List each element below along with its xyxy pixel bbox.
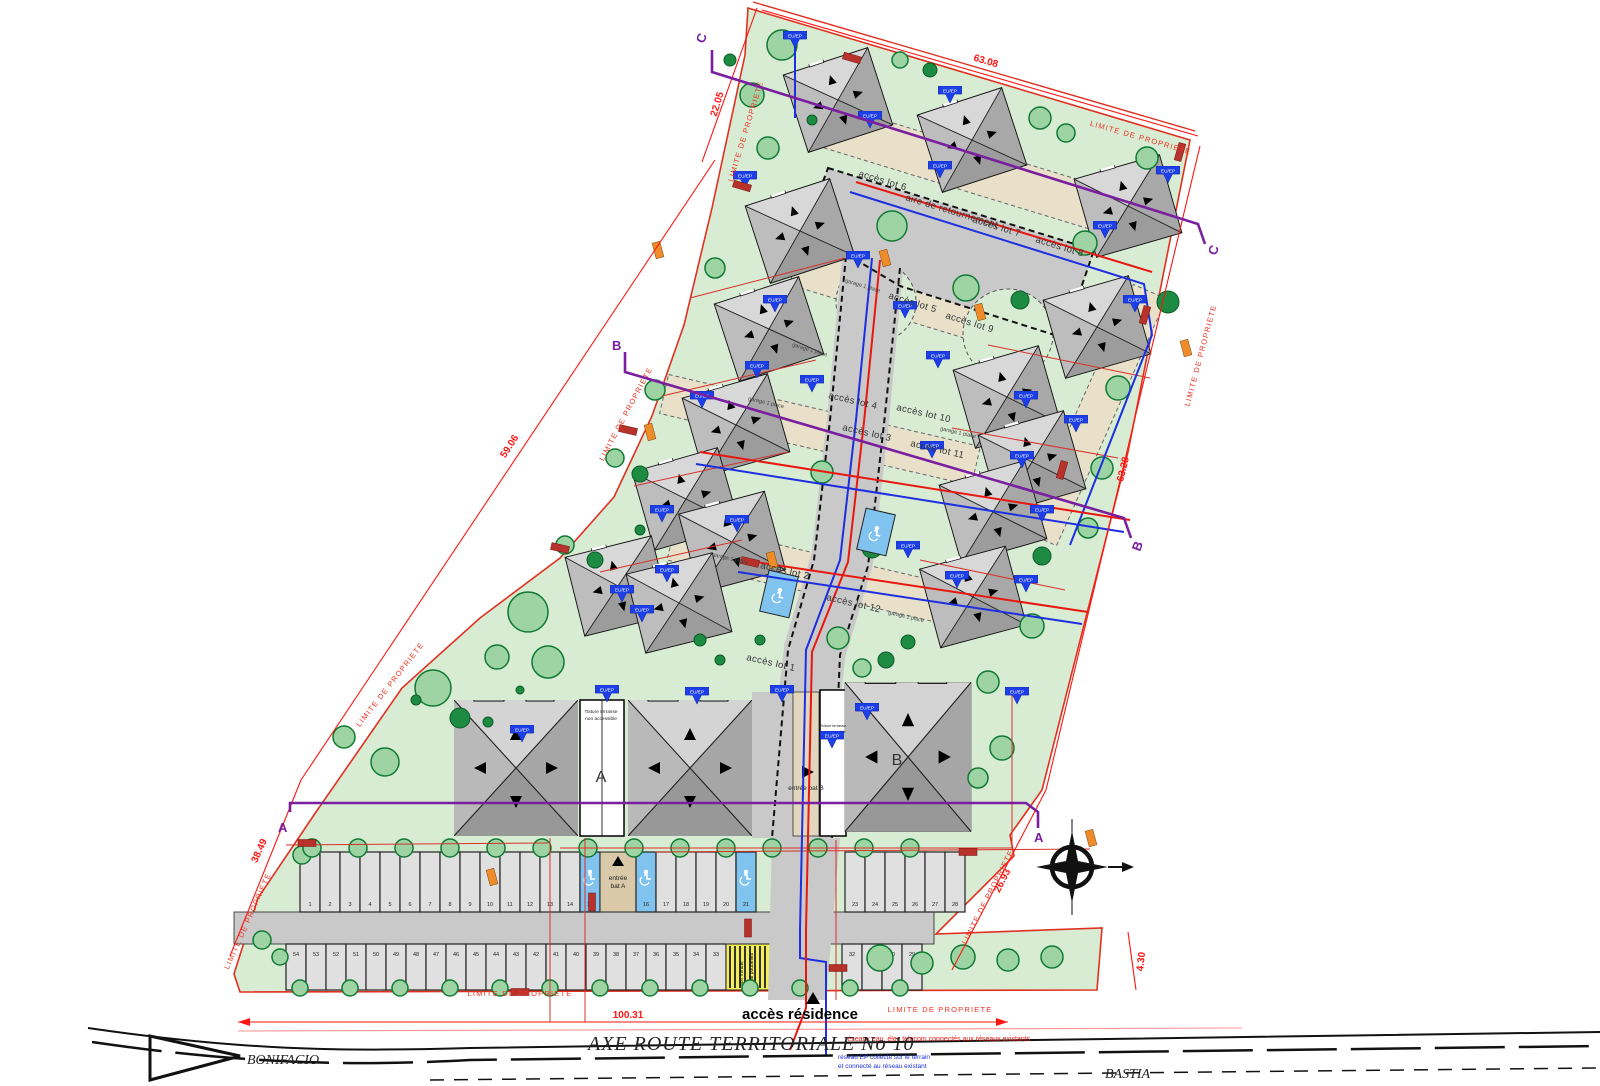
parking-stall <box>606 944 626 990</box>
parking-stall-number: 23 <box>852 902 858 908</box>
section-c-right: C <box>1205 242 1223 257</box>
note-networks-blue-1: réseau EP collecté sur le terrain <box>838 1054 930 1061</box>
section-b-right: B <box>1129 539 1146 553</box>
site-plan-page: { "plan": { "boundary_label": "LIMITE DE… <box>0 0 1600 1086</box>
access-residence-label: accès résidence <box>742 1006 858 1023</box>
section-a-right: A <box>1034 830 1044 845</box>
parking-stall-number: 38 <box>613 952 619 958</box>
tree-icon <box>757 137 779 159</box>
dim-top-left: 22.05 <box>709 90 727 118</box>
tree-icon <box>1041 946 1063 968</box>
dim-bottom-left: 38.49 <box>250 837 270 865</box>
parking-stall-number: 42 <box>533 952 539 958</box>
parking-stall-number: 35 <box>673 952 679 958</box>
tree-icon <box>1136 147 1158 169</box>
parking-stall-number: 9 <box>468 902 471 908</box>
parking-stall-number: 45 <box>473 952 479 958</box>
parking-stall <box>706 944 726 990</box>
tree-icon <box>827 627 849 649</box>
tree-icon <box>923 63 937 77</box>
bush-icon <box>635 525 645 535</box>
tree-icon <box>532 646 564 678</box>
red-tag <box>589 893 596 911</box>
tree-icon <box>990 736 1014 760</box>
parking-stall-number: 52 <box>333 952 339 958</box>
parking-stall-number: 46 <box>453 952 459 958</box>
building-b-label: B <box>892 752 903 769</box>
tree-icon <box>485 645 509 669</box>
parking-stall-number: 53 <box>313 952 319 958</box>
tree-icon <box>968 768 988 788</box>
parking-stall-number: 21 <box>743 902 749 908</box>
tree-icon <box>878 652 894 668</box>
parking-stall-number: 37 <box>633 952 639 958</box>
parking-stall-number: 32 <box>849 952 855 958</box>
parking-stall-number: 6 <box>408 902 411 908</box>
tree-icon <box>901 635 915 649</box>
parking-stall-number: 26 <box>912 902 918 908</box>
parking-stall-number: 10 <box>487 902 493 908</box>
parking-stall-number: 47 <box>433 952 439 958</box>
tree-icon <box>692 980 708 996</box>
tree-icon <box>342 980 358 996</box>
parking-stall-number: 39 <box>593 952 599 958</box>
tree-icon <box>253 931 271 949</box>
tree-icon <box>705 258 725 278</box>
tree-icon <box>441 839 459 857</box>
parking-stall-number: 36 <box>653 952 659 958</box>
parking-stall-number: 41 <box>553 952 559 958</box>
dim-strip: 4.30 <box>1135 951 1148 972</box>
parking-stall-number: 43 <box>513 952 519 958</box>
site-plan-svg: EU/EP 123456789101112131415entréebat A16… <box>0 0 1600 1086</box>
parking-stall-number: 3 <box>348 902 351 908</box>
bush-icon <box>807 115 817 125</box>
tree-icon <box>442 980 458 996</box>
parking-stall-number: 50 <box>373 952 379 958</box>
roof-note-b-1: Toiture terrasse <box>820 724 846 728</box>
bush-icon <box>516 686 524 694</box>
parking-stall-number: 51 <box>353 952 359 958</box>
tree-icon <box>867 945 893 971</box>
parking-stall <box>466 944 486 990</box>
parking-stall-number: 24 <box>872 902 878 908</box>
section-b-left: B <box>612 338 621 353</box>
parking-stall-number: 20 <box>723 902 729 908</box>
parking-stall-number: 27 <box>932 902 938 908</box>
parking-stall-number: 54 <box>293 952 299 958</box>
tree-icon <box>349 839 367 857</box>
tree-icon <box>742 980 758 996</box>
tree-icon <box>977 671 999 693</box>
parking-stall-number: 5 <box>388 902 391 908</box>
roof-note-a-2: non accessible <box>585 716 617 722</box>
parking-stall-number: 11 <box>507 902 513 908</box>
parking-stall-number: 7 <box>428 902 431 908</box>
parking-stall-number: 18 <box>683 902 689 908</box>
building-b-entry-strip <box>793 692 819 836</box>
parking-stall-number: 4 <box>368 902 371 908</box>
tree-icon <box>1029 107 1051 129</box>
orange-tag <box>652 241 664 259</box>
parking-stall-number: 49 <box>393 952 399 958</box>
parking-stall-number: 19 <box>703 902 709 908</box>
tree-icon <box>1033 547 1051 565</box>
bush-icon <box>694 634 706 646</box>
building-b-roof <box>845 673 971 831</box>
tree-icon <box>371 748 399 776</box>
parking-stall-number: 14 <box>567 902 573 908</box>
orange-tag <box>1180 339 1192 357</box>
tree-icon <box>1057 124 1075 142</box>
bush-icon <box>483 717 493 727</box>
tree-icon <box>853 659 871 677</box>
tree-icon <box>1011 291 1029 309</box>
building-b-terrace <box>820 690 846 836</box>
entrance-a-label: entrée <box>609 875 628 882</box>
section-c-left: C <box>693 30 711 45</box>
tree-icon <box>533 839 551 857</box>
lot1-lane <box>752 692 794 838</box>
red-tag <box>829 965 847 972</box>
bush-icon <box>715 655 725 665</box>
city-left-label: BONIFACIO <box>247 1053 319 1068</box>
tree-icon <box>487 839 505 857</box>
bush-icon <box>755 635 765 645</box>
compass-rose-icon <box>1036 819 1134 915</box>
parking-stall-number: 17 <box>663 902 669 908</box>
parking-stall <box>306 944 326 990</box>
parking-stall-number: 44 <box>493 952 499 958</box>
tree-icon <box>395 839 413 857</box>
parking-stall <box>366 944 386 990</box>
dim-bottom: 100.31 <box>613 1010 644 1021</box>
tree-icon <box>292 980 308 996</box>
dim-arrow <box>238 1018 250 1026</box>
red-tag <box>959 849 977 856</box>
tree-icon <box>508 592 548 632</box>
building-a-right-roof <box>628 692 752 836</box>
parking-stall-number: 16 <box>643 902 649 908</box>
limite-bottom-right: LIMITE DE PROPRIETE <box>888 1005 993 1014</box>
parking-stall <box>406 944 426 990</box>
orange-tag <box>1085 829 1097 847</box>
tree-icon <box>632 466 648 482</box>
building-a-left-roof <box>454 692 578 836</box>
parking-stall-number: 1 <box>308 902 311 908</box>
parking-stall-number: 33 <box>713 952 719 958</box>
tree-icon <box>953 275 979 301</box>
red-tag <box>745 919 752 937</box>
tree-icon <box>877 211 907 241</box>
roof-note-a-1: Toiture terrasse <box>584 709 617 715</box>
tree-icon <box>333 726 355 748</box>
parking-stall <box>666 944 686 990</box>
tree-icon <box>842 980 858 996</box>
parking-stall-number: 34 <box>693 952 699 958</box>
building-a-label: A <box>596 769 607 786</box>
parking-stall-number: 8 <box>448 902 451 908</box>
dim-left: 59.06 <box>498 433 521 460</box>
tree-icon <box>592 980 608 996</box>
bush-icon <box>724 54 736 66</box>
tree-icon <box>450 708 470 728</box>
entrance-a-label: bat A <box>611 883 626 890</box>
parking-stall-number: 2 <box>328 902 331 908</box>
tree-icon <box>587 552 603 568</box>
parking-stall-number: 48 <box>413 952 419 958</box>
tree-icon <box>642 980 658 996</box>
tree-icon <box>892 52 908 68</box>
parking-stall-number: 40 <box>573 952 579 958</box>
route-axis-label: AXE ROUTE TERRITORIALE No 10 <box>586 1033 915 1055</box>
tree-icon <box>911 952 933 974</box>
section-a-left: A <box>278 820 288 835</box>
parking-stall <box>506 944 526 990</box>
dim-arrow <box>996 1018 1008 1026</box>
note-networks-blue-2: et connecté au réseau existant <box>838 1063 927 1070</box>
tree-icon <box>392 980 408 996</box>
tree-icon <box>272 949 288 965</box>
parking-stall <box>566 944 586 990</box>
limite-bottom-center: LIMITE DE PROPRIETE <box>468 989 573 998</box>
tree-icon <box>997 949 1019 971</box>
bush-icon <box>411 695 421 705</box>
tree-icon <box>892 980 908 996</box>
parking-stall-number: 25 <box>892 902 898 908</box>
parking-stall-number: 28 <box>952 902 958 908</box>
red-tag <box>298 840 316 847</box>
parking-stall-number: 12 <box>527 902 533 908</box>
entrance-b-label-1: entrée bat B <box>788 785 823 792</box>
city-right-label: BASTIA <box>1105 1067 1151 1082</box>
tree-icon <box>1106 376 1130 400</box>
